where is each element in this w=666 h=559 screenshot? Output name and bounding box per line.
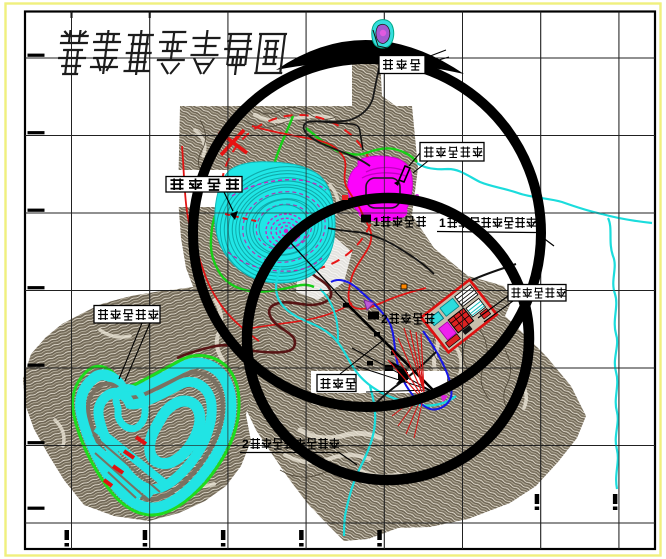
svg-text:2: 2 xyxy=(242,437,249,451)
svg-text:2: 2 xyxy=(381,312,388,326)
svg-text:1: 1 xyxy=(373,215,380,229)
svg-text:1: 1 xyxy=(439,216,446,230)
